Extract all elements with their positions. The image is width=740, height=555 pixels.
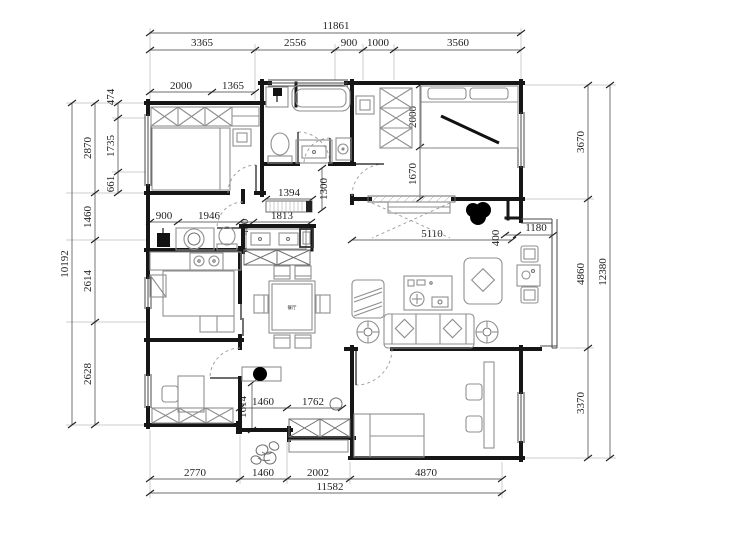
dim-bottom-2: 1460 <box>252 467 275 479</box>
dim-left-2: 1460 <box>82 206 94 229</box>
dim-corridor-a: 1460 <box>252 396 275 408</box>
side-table-lamp-left <box>357 321 379 343</box>
dim-top-4: 1000 <box>367 37 390 49</box>
dimension-labels: 11861 3365 2556 900 1000 3560 474 1735 6… <box>59 20 609 493</box>
dim-top-5: 3560 <box>447 37 470 49</box>
wardrobe <box>152 408 233 423</box>
desk <box>484 362 494 448</box>
dim-top-3: 900 <box>341 37 358 49</box>
dim-corridor-b: 1762 <box>302 396 324 408</box>
chair <box>466 416 482 432</box>
kitchen-counter <box>150 252 241 270</box>
dim-hall-a: 900 <box>156 210 173 222</box>
fridge-icon <box>150 275 166 297</box>
dining-table-label: 餐厅 <box>288 304 297 311</box>
dim-entry-a: 400 <box>490 229 502 246</box>
room-kitchen <box>150 252 241 332</box>
vanity-sink-icon <box>296 140 332 163</box>
decorative-sketch-icon <box>250 440 280 465</box>
dim-hall-b: 1946 <box>198 210 221 222</box>
dim-left-1: 2870 <box>82 137 94 160</box>
double-vanity <box>244 229 313 265</box>
dim-master-lower: 1670 <box>407 163 419 186</box>
sofa <box>384 314 474 348</box>
kitchen-cabinet <box>200 316 234 332</box>
floor-plan: 11861 3365 2556 900 1000 3560 474 1735 6… <box>0 0 740 555</box>
dim-left-sub-2: 1735 <box>105 135 117 158</box>
dim-master-bed: 2000 <box>407 106 419 129</box>
corridor-entry <box>242 367 350 465</box>
room-dining: 餐厅 <box>254 266 330 348</box>
dim-right-total: 12380 <box>597 258 609 286</box>
room-bathroom1 <box>266 85 351 163</box>
corner-sink-icon <box>336 138 351 160</box>
toilet-icon <box>268 133 292 163</box>
water-heater-icon <box>157 228 170 247</box>
wardrobe <box>151 107 259 126</box>
dim-living-width: 5110 <box>421 228 443 240</box>
shoe-cabinet-x <box>289 419 350 437</box>
chair <box>162 386 178 402</box>
bed <box>421 86 518 148</box>
bed <box>152 128 230 190</box>
coffee-table <box>404 276 452 310</box>
dim-bottom-1: 2770 <box>184 467 207 479</box>
dim-left-total: 10192 <box>59 250 71 278</box>
dining-table: 餐厅 <box>269 281 315 333</box>
entry-step <box>289 440 348 452</box>
doors <box>210 132 392 385</box>
potted-plant-icon <box>466 202 491 225</box>
side-table-lamp-right <box>476 321 498 343</box>
room-bedroom1 <box>151 107 259 190</box>
room-bedroom2 <box>354 362 494 457</box>
armchair <box>464 258 502 304</box>
wash-console <box>242 367 281 381</box>
dim-right-3: 3370 <box>575 392 587 415</box>
sofa-pillow <box>443 319 461 337</box>
sofa-pillow <box>395 319 413 337</box>
floor-plan-page: 11861 3365 2556 900 1000 3560 474 1735 6… <box>0 0 740 555</box>
room-bedroom3 <box>152 376 233 423</box>
dim-top-total: 11861 <box>322 20 349 32</box>
shelf <box>356 96 374 114</box>
washing-machine-icon <box>266 87 288 107</box>
chair <box>466 384 482 400</box>
balcony-bay-window <box>521 219 557 348</box>
room-living <box>352 246 540 348</box>
stools-and-table <box>517 246 540 303</box>
dim-left-sub-3: 661 <box>105 176 117 193</box>
dim-left-3: 2614 <box>82 270 94 293</box>
toilet-icon <box>217 227 237 250</box>
dim-top-1: 3365 <box>191 37 214 49</box>
chaise-lounge <box>352 280 384 318</box>
dim-left-4: 2628 <box>82 363 94 386</box>
round-basin-icon <box>176 228 214 250</box>
dim-hall-height: 1300 <box>318 178 330 201</box>
dim-bottom-total: 11582 <box>316 481 343 493</box>
room-bathroom2 <box>157 227 237 250</box>
dim-right-2: 4860 <box>575 263 587 286</box>
desk <box>178 376 204 412</box>
bed <box>354 414 424 457</box>
stove-icon <box>190 253 223 270</box>
blanket-fold-line <box>441 116 499 143</box>
kitchen-island <box>163 271 234 316</box>
dim-bottom-4: 4870 <box>415 467 438 479</box>
bathtub-icon <box>292 85 350 111</box>
dim-right-1: 3670 <box>575 131 587 154</box>
dim-entry-b: 1180 <box>525 222 547 234</box>
nightstand <box>233 129 251 146</box>
dim-hall-console: 1394 <box>278 187 301 199</box>
sideboard-x-cabinet <box>244 250 310 265</box>
room-master-bedroom <box>356 86 518 148</box>
dim-left-sub-1: 474 <box>105 88 117 105</box>
dim-bottom-3: 2002 <box>307 467 329 479</box>
dim-top-2: 2556 <box>284 37 307 49</box>
dim-bedroom1-a: 2000 <box>170 80 193 92</box>
dim-bedroom1-b: 1365 <box>222 80 245 92</box>
